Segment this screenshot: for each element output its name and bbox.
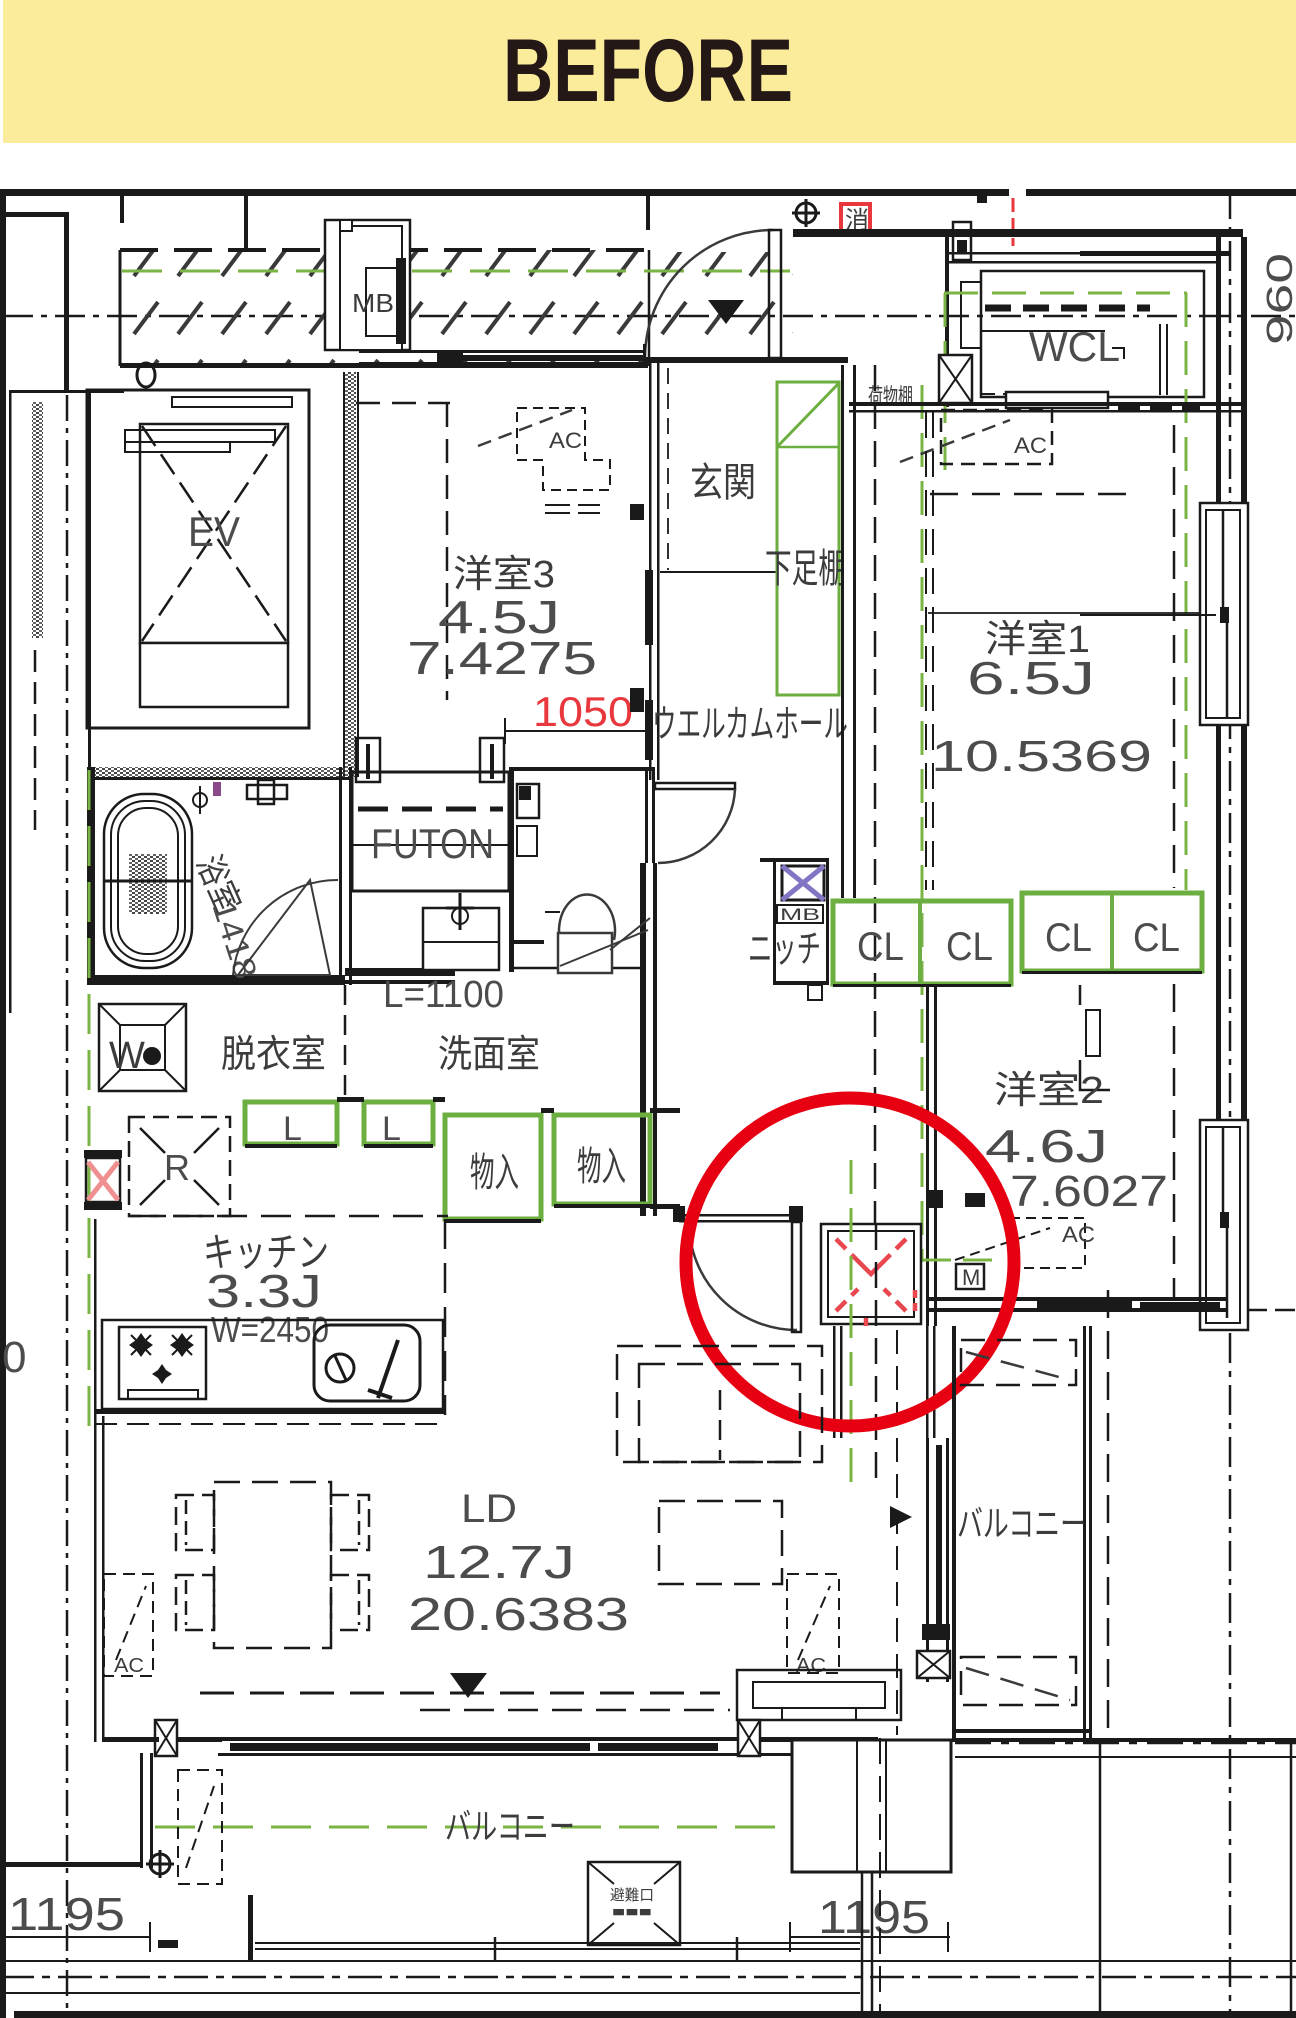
- svg-text:1195: 1195: [818, 1891, 930, 1943]
- svg-text:LD: LD: [461, 1487, 517, 1531]
- svg-text:L: L: [382, 1110, 401, 1148]
- svg-text:6.5J: 6.5J: [967, 652, 1095, 704]
- svg-text:1418: 1418: [205, 896, 264, 983]
- svg-text:洗面室: 洗面室: [438, 1034, 540, 1076]
- svg-text:洋室2: 洋室2: [994, 1070, 1104, 1112]
- svg-text:FUTON: FUTON: [371, 820, 494, 867]
- svg-text:20.6383: 20.6383: [408, 1588, 629, 1640]
- svg-text:脱衣室: 脱衣室: [221, 1034, 326, 1076]
- svg-text:CL: CL: [1133, 916, 1180, 960]
- svg-text:1195: 1195: [8, 1888, 125, 1940]
- svg-text:下足棚: 下足棚: [765, 547, 845, 591]
- svg-text:4.6J: 4.6J: [985, 1120, 1108, 1172]
- svg-text:W=2450: W=2450: [211, 1309, 329, 1350]
- svg-text:L: L: [283, 1110, 302, 1148]
- svg-text:AC: AC: [1062, 1222, 1095, 1247]
- svg-text:AC: AC: [796, 1655, 826, 1677]
- svg-text:■■■: ■■■: [612, 1904, 652, 1919]
- svg-text:7.6027: 7.6027: [1010, 1167, 1168, 1216]
- svg-text:7.4275: 7.4275: [407, 632, 597, 684]
- svg-text:避難口: 避難口: [610, 1887, 654, 1904]
- svg-text:WCL: WCL: [1029, 323, 1120, 370]
- svg-text:AC: AC: [1014, 433, 1047, 458]
- svg-text:960: 960: [1259, 253, 1296, 345]
- svg-text:洋室3: 洋室3: [453, 554, 555, 596]
- svg-text:CL: CL: [857, 925, 904, 969]
- svg-text:R: R: [164, 1147, 190, 1188]
- svg-text:1050: 1050: [533, 688, 633, 735]
- svg-text:MB: MB: [780, 905, 820, 924]
- svg-text:EV: EV: [188, 508, 240, 555]
- svg-text:ニッチ: ニッチ: [748, 929, 821, 971]
- svg-text:10.5369: 10.5369: [931, 732, 1152, 781]
- svg-text:ウエルカムホール: ウエルカムホール: [652, 704, 848, 746]
- svg-text:AC: AC: [549, 428, 582, 453]
- svg-text:MB: MB: [352, 288, 394, 318]
- svg-text:バルコニー: バルコニー: [957, 1503, 1086, 1544]
- svg-text:L=1100: L=1100: [383, 974, 504, 1016]
- svg-text:W: W: [109, 1035, 145, 1077]
- svg-text:バルコニー: バルコニー: [445, 1806, 575, 1847]
- svg-text:0: 0: [2, 1333, 26, 1382]
- svg-text:12.7J: 12.7J: [423, 1536, 575, 1588]
- svg-text:M: M: [962, 1265, 980, 1290]
- svg-text:AC: AC: [114, 1655, 144, 1677]
- svg-text:BEFORE: BEFORE: [503, 20, 793, 120]
- svg-text:物入: 物入: [470, 1151, 519, 1195]
- svg-text:玄関: 玄関: [690, 461, 756, 505]
- svg-text:CL: CL: [946, 925, 993, 969]
- svg-text:CL: CL: [1045, 916, 1092, 960]
- svg-text:物入: 物入: [577, 1145, 626, 1189]
